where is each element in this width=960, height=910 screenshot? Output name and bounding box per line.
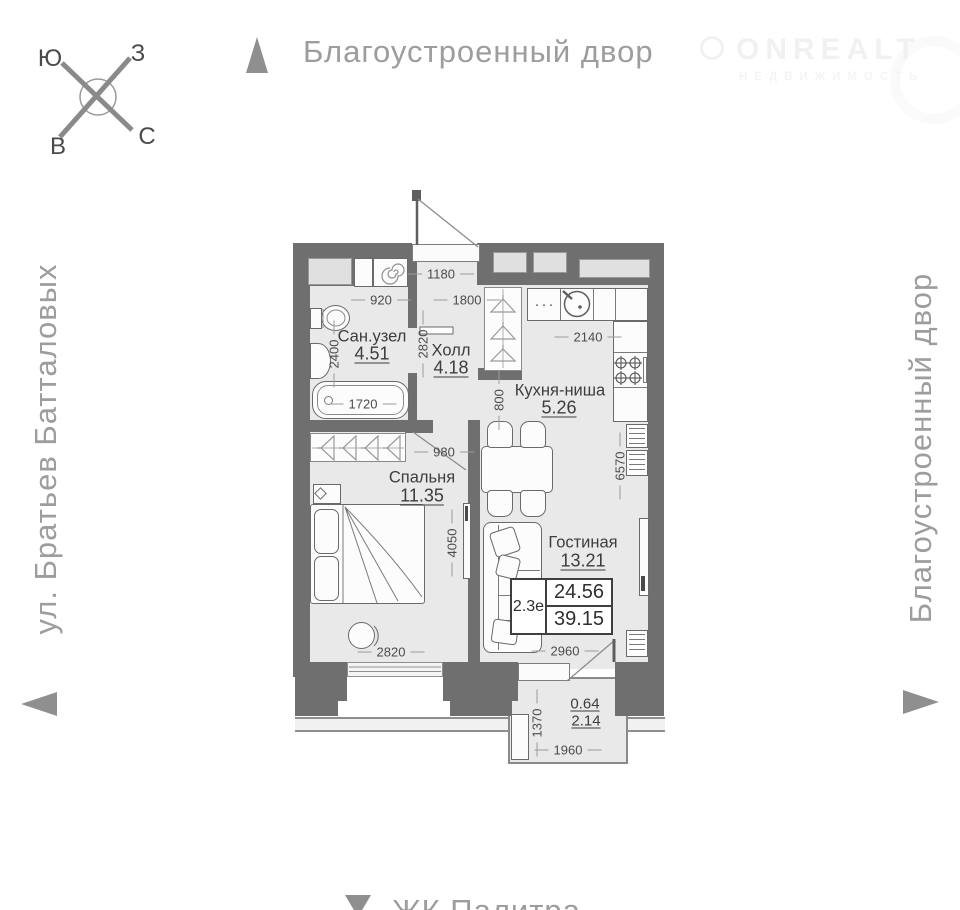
unit-type-label: 2.3е <box>512 580 547 633</box>
room-area-kitchen: 5.26 <box>541 398 576 419</box>
logo-subtitle: НЕДВИЖИМОСТЬ <box>739 71 924 83</box>
compass-west-label: З <box>131 40 146 67</box>
room-area-hall: 4.18 <box>433 358 468 379</box>
dim-tub-length: 1720 <box>330 397 397 412</box>
compass-east-label: В <box>50 133 66 160</box>
bottom-direction-icon <box>345 895 371 910</box>
compass-south-label: Ю <box>38 45 62 72</box>
dim-bath-width: 920 <box>351 293 411 308</box>
dim-balcony-width: 1960 <box>535 743 602 758</box>
dim-bedroom-depth: 4050 <box>445 510 460 577</box>
room-area-living: 13.21 <box>560 551 605 572</box>
dim-bedroom-door: 980 <box>414 445 474 460</box>
total-area-value: 39.15 <box>547 607 611 634</box>
dim-kitchen-width: 2140 <box>555 330 622 345</box>
logo-title: ONREALT <box>736 33 921 67</box>
room-area-bathroom: 4.51 <box>354 344 389 365</box>
dim-right-side: 6570 <box>613 433 628 500</box>
left-street-label: ул. Братьев Батталовых <box>28 263 64 634</box>
top-surrounding-label: Благоустроенный двор <box>303 34 654 70</box>
left-direction-icon <box>21 692 57 716</box>
apartment-summary-box: 2.3е 24.56 39.15 <box>510 578 613 635</box>
dim-kitchen-depth: 800 <box>492 370 507 430</box>
room-area-bedroom: 11.35 <box>400 486 444 507</box>
dim-hall-depth: 2820 <box>416 311 431 378</box>
dim-living-width: 2960 <box>532 644 599 659</box>
logo-pin-icon <box>700 36 724 60</box>
bottom-complex-label: ЖК Палитра <box>392 893 581 910</box>
compass-rose: Ю З В С <box>0 0 200 180</box>
balcony-area: 2.14 <box>571 713 600 730</box>
compass-north-label: С <box>138 123 155 150</box>
balcony-reduced-area: 0.64 <box>570 696 599 713</box>
floorplan-page: Ю З В С Благоустроенный двор ONREALT НЕД… <box>0 0 960 910</box>
right-surrounding-label: Благоустроенный двор <box>903 273 939 624</box>
living-area-value: 24.56 <box>547 580 611 607</box>
right-direction-icon <box>903 690 939 714</box>
dim-bedroom-width: 2820 <box>358 645 425 660</box>
dim-bath-depth: 2400 <box>327 321 342 388</box>
dim-entry-width: 1180 <box>408 267 474 282</box>
dim-hall-width: 1800 <box>434 293 501 308</box>
top-direction-icon <box>246 37 268 73</box>
